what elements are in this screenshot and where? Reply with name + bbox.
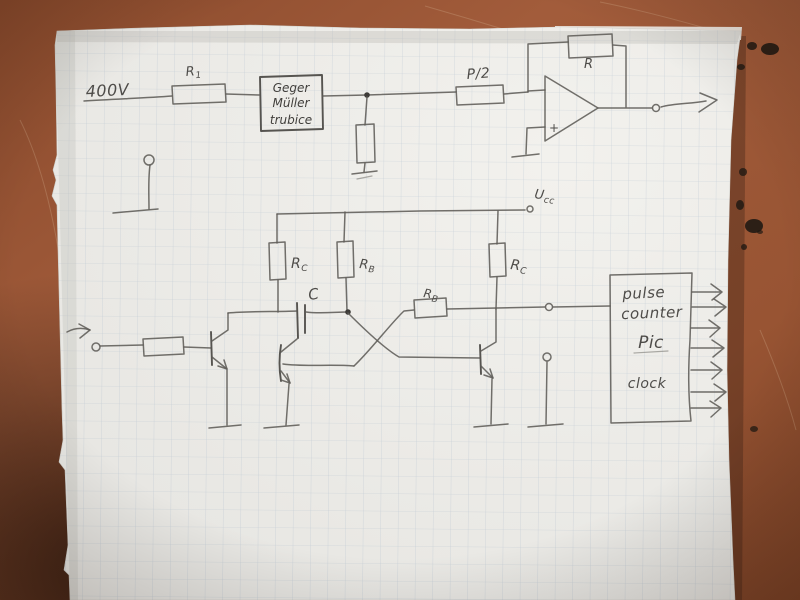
photo-vignette <box>0 0 800 600</box>
scene: 400V R1 Geger Müller trubice P/2 <box>0 0 800 600</box>
photo-of-hand-drawn-schematic: 400V R1 Geger Müller trubice P/2 <box>0 0 800 600</box>
